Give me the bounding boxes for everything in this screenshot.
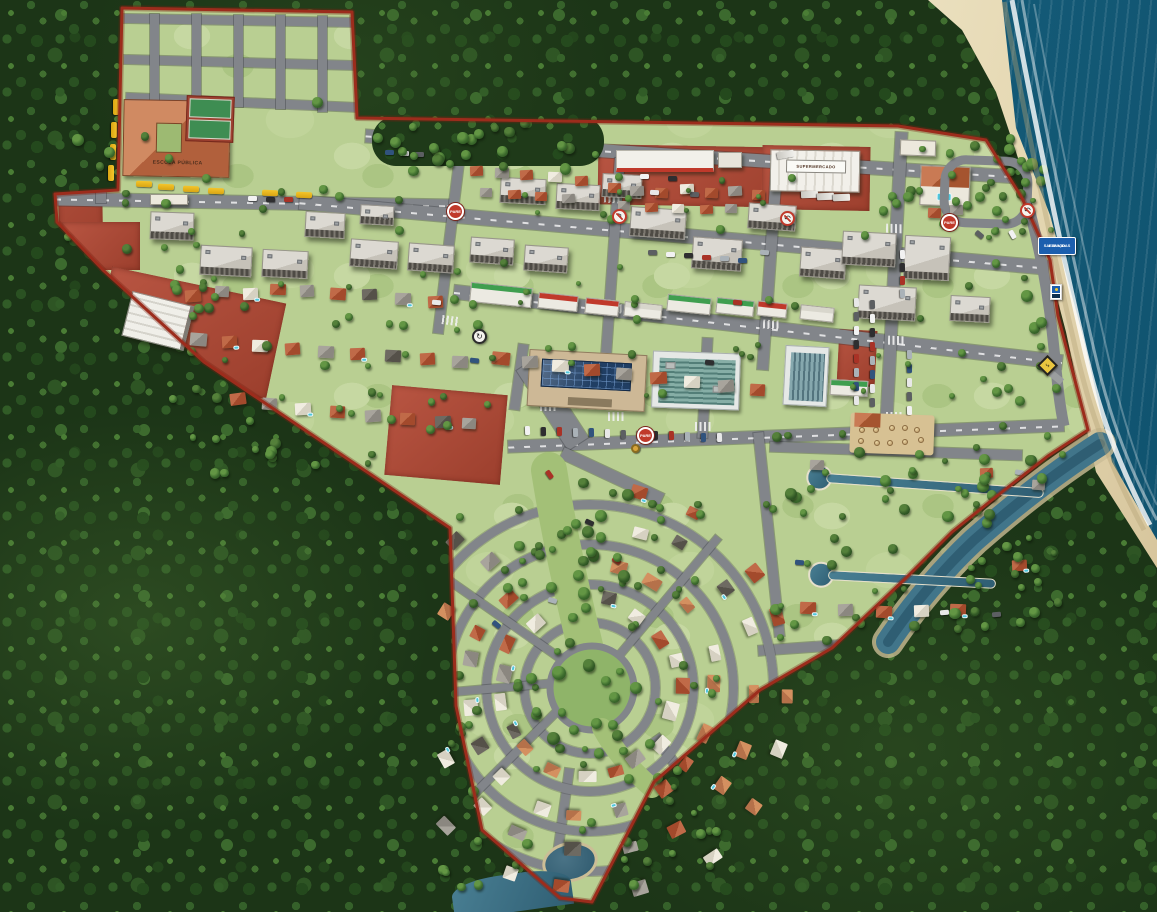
no-left-turn-icon: ↰: [616, 213, 623, 221]
mini-roundabout-marker: [631, 444, 640, 453]
masterplan-map: ESCOLA PÚBLICA SUPERMERCADO: [0, 0, 1157, 912]
beach-info-sign: ESPAÇO SALVA-VIDAS: [1038, 237, 1076, 255]
sign-icon: [1055, 288, 1058, 291]
no-u-turn-sign: ↶: [780, 211, 795, 226]
no-left-turn-sign: ↰: [612, 209, 627, 224]
roundabout-icon: ↻: [476, 333, 483, 341]
no-u-turn-sign: ↶: [1020, 203, 1035, 218]
stop-sign: PARE: [447, 203, 464, 220]
beach-info-line2: SALVA-VIDAS: [1044, 244, 1071, 248]
stop-sign: PARE: [941, 214, 958, 231]
beach-rules-sign: [1050, 284, 1062, 300]
roundabout-sign: ↻: [472, 329, 487, 344]
warning-arrow-icon: ⤷: [1046, 361, 1050, 369]
no-u-turn-icon: ↶: [784, 215, 791, 223]
warning-diamond-sign: ⤷: [1037, 355, 1058, 376]
sign-panel: [1052, 294, 1060, 298]
no-u-turn-icon: ↶: [1024, 207, 1031, 215]
stop-sign: PARE: [637, 427, 654, 444]
signs-layer: PARE PARE PARE ↰ ↶ ↶ ↻ ESPAÇO SALVA-VIDA…: [0, 0, 1157, 912]
